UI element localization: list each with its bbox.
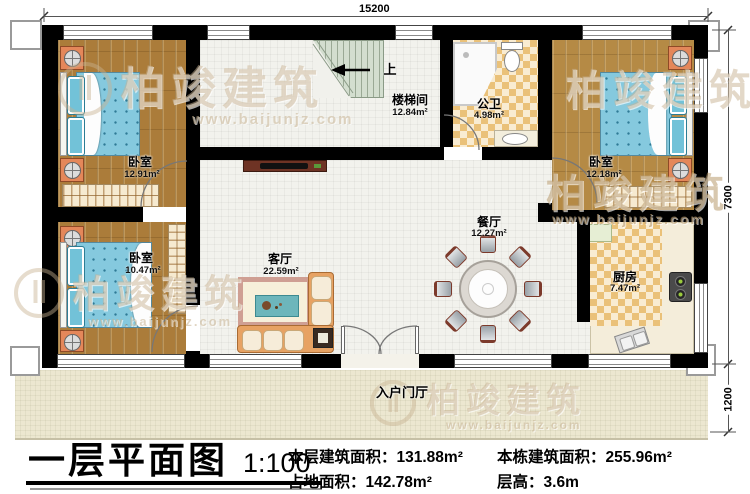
- watermark-url: www.baijunjz.com: [446, 419, 582, 431]
- room-label-dining: 餐厅: [477, 216, 501, 228]
- dining-chair: [434, 281, 452, 297]
- room-label-bedroom-tr: 卧室: [589, 156, 613, 168]
- dining-chair: [524, 281, 542, 297]
- watermark-url: www.baijunjz.com: [88, 315, 232, 328]
- lamp-icon: [64, 334, 81, 351]
- stat-label: 层高：: [497, 474, 544, 491]
- lamp-icon: [672, 50, 689, 67]
- watermark-url: www.baijunjz.com: [192, 112, 353, 127]
- side-table-top: [318, 333, 328, 343]
- room-label-bedroom-tl: 卧室: [128, 156, 152, 168]
- entry-door-leaf: [341, 326, 345, 354]
- dimension-line-top: [44, 16, 708, 17]
- room-label-stairwell: 楼梯间: [392, 94, 428, 106]
- watermark-logo-bars: [27, 280, 50, 303]
- burner-icon: [675, 276, 686, 287]
- watermark-brand: 柏竣建筑: [565, 70, 750, 112]
- wall-segment: [538, 25, 552, 157]
- floor-plan: 15200 7300 1200 柏竣建筑 www.baijunjz.com 柏竣…: [0, 0, 750, 494]
- window: [588, 354, 671, 368]
- burner-icon: [675, 289, 686, 300]
- bed-pillow: [669, 117, 687, 156]
- tv-cabinet: [243, 160, 327, 172]
- stat-value: 3.6m: [544, 474, 579, 491]
- sofa-cushion: [242, 330, 262, 351]
- watermark-url: www.baijunjz.com: [552, 212, 705, 226]
- room-area-living: 22.59m²: [263, 267, 298, 277]
- room-label-kitchen: 厨房: [613, 271, 637, 283]
- room-area-bedroom-bl: 10.47m²: [125, 266, 160, 276]
- plan-title: 一层平面图: [28, 442, 228, 479]
- room-area-bathroom: 4.98m²: [474, 111, 504, 121]
- watermark-logo-icon: [58, 62, 112, 116]
- stat-value: 131.88m²: [397, 449, 463, 466]
- corner-column: [10, 346, 40, 376]
- nightstand: [60, 158, 84, 182]
- corner-column: [10, 20, 42, 50]
- sink-basin: [632, 331, 648, 347]
- watermark-brand: 柏竣建筑: [120, 66, 324, 111]
- room-area-bedroom-tl: 12.91m²: [124, 170, 159, 180]
- room-label-bedroom-bl: 卧室: [129, 252, 153, 264]
- window: [582, 25, 672, 40]
- sofa-cushion: [311, 301, 332, 326]
- watermark-brand: 柏竣建筑: [72, 276, 248, 314]
- room-label-foyer: 入户门厅: [376, 386, 428, 399]
- table-decor: [262, 301, 271, 310]
- dimension-right-lower: 1200: [724, 384, 735, 414]
- wall-segment: [200, 147, 444, 160]
- coffee-table: [255, 295, 299, 317]
- room-label-bathroom: 公卫: [477, 98, 501, 110]
- entrance-porch: [15, 370, 708, 440]
- watermark-brand: 柏竣建筑: [546, 174, 730, 214]
- dimension-top: 15200: [356, 4, 393, 15]
- watermark-logo-bars: [72, 75, 97, 100]
- stat-label: 本栋建筑面积：: [497, 449, 606, 466]
- tv-icon: [260, 163, 308, 169]
- title-underline-thin: [30, 488, 322, 490]
- room-area-stairwell: 12.84m²: [392, 108, 427, 118]
- window: [395, 25, 433, 40]
- room-area-bedroom-tr: 12.18m²: [586, 170, 621, 180]
- dining-chair: [480, 325, 496, 343]
- stat-label: 本层建筑面积：: [288, 449, 397, 466]
- lamp-icon: [64, 162, 81, 179]
- decor-dot: [314, 164, 321, 168]
- stat-footprint-area: 占地面积：142.78m²: [288, 470, 432, 492]
- toilet-bowl: [504, 50, 520, 72]
- bathroom-sink: [502, 133, 528, 145]
- entry-door-opening: [341, 354, 419, 368]
- entry-door-leaf: [415, 326, 419, 354]
- stairs-up-label: 上: [383, 63, 396, 76]
- sofa-cushion: [263, 330, 283, 351]
- watermark-logo-icon: [14, 268, 64, 318]
- toilet: [501, 42, 523, 50]
- stat-building-area: 本栋建筑面积：255.96m²: [497, 445, 672, 467]
- window: [207, 25, 250, 40]
- room-area-kitchen: 7.47m²: [610, 284, 640, 294]
- nightstand: [60, 330, 84, 352]
- window: [57, 354, 185, 368]
- window: [63, 25, 153, 40]
- bed-pillow: [67, 117, 85, 156]
- watermark-brand: 柏竣建筑: [426, 384, 586, 418]
- stat-label: 占地面积：: [288, 474, 366, 491]
- wall-segment: [440, 40, 453, 147]
- sofa-cushion: [284, 330, 304, 351]
- window: [694, 283, 708, 353]
- wall-segment: [577, 222, 590, 322]
- title-underline: [26, 481, 322, 485]
- window: [209, 354, 302, 368]
- sofa-cushion: [311, 276, 332, 300]
- stat-value: 142.78m²: [366, 474, 432, 491]
- shower-drain-icon: [463, 52, 469, 58]
- wardrobe: [62, 184, 159, 207]
- stat-value: 255.96m²: [606, 449, 672, 466]
- stove: [669, 272, 692, 302]
- stat-floor-height: 层高：3.6m: [497, 470, 579, 492]
- side-table: [313, 328, 333, 348]
- dining-table-center: [482, 283, 494, 295]
- stat-floor-area: 本层建筑面积：131.88m²: [288, 445, 463, 467]
- room-area-dining: 12.27m²: [471, 229, 506, 239]
- window: [454, 354, 552, 368]
- room-label-living: 客厅: [268, 253, 292, 265]
